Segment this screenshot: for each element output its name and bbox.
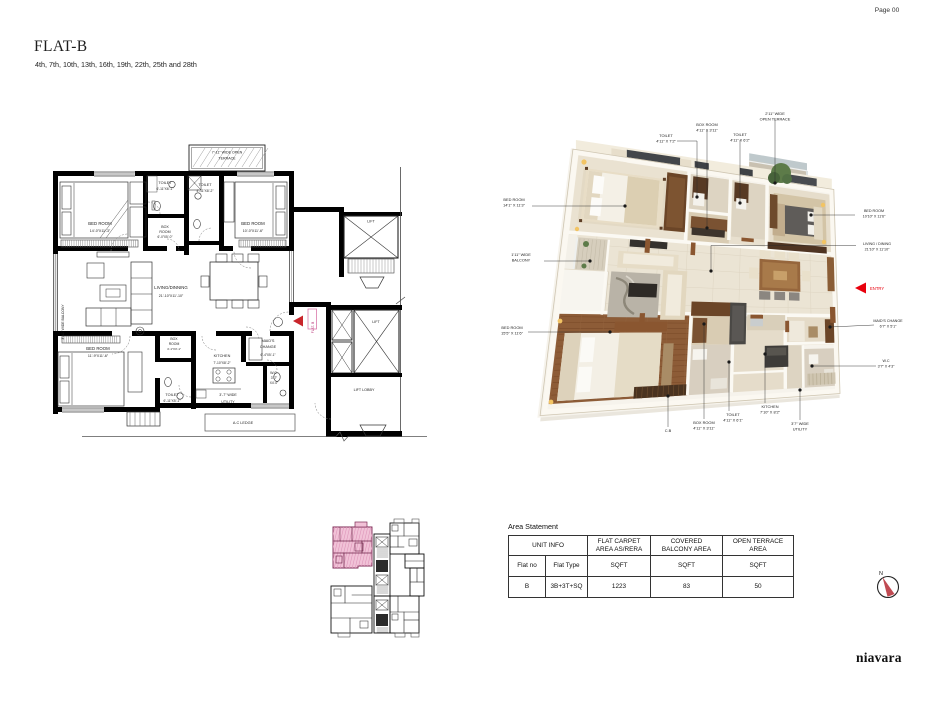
svg-text:2’11” WIDE: 2’11” WIDE (765, 111, 785, 116)
svg-text:3’7” WIDE: 3’7” WIDE (791, 421, 809, 426)
svg-text:BOX ROOM: BOX ROOM (696, 122, 717, 127)
svg-text:BALCONY: BALCONY (512, 257, 531, 262)
svg-text:LIFT LOBBY: LIFT LOBBY (354, 388, 375, 392)
svg-text:4’11” X 3’11”: 4’11” X 3’11” (696, 127, 718, 132)
svg-text:6’-11”X5’-1”: 6’-11”X5’-1” (164, 399, 181, 403)
svg-text:6’-4”X5’-1”: 6’-4”X5’-1” (261, 353, 276, 357)
svg-text:14’1” X 11’3”: 14’1” X 11’3” (503, 202, 525, 207)
svg-text:7’10” X 8’2”: 7’10” X 8’2” (760, 409, 781, 414)
svg-text:TOILET: TOILET (726, 412, 740, 417)
svg-text:6’7” X 5’1”: 6’7” X 5’1” (880, 324, 898, 328)
svg-text:10’10” X 11’6”: 10’10” X 11’6” (863, 214, 886, 218)
svg-text:X4’-0”: X4’-0” (270, 381, 279, 385)
svg-text:N: N (879, 571, 883, 577)
svg-text:11’-9”X11’-6”: 11’-9”X11’-6” (88, 354, 109, 358)
svg-text:LIFT: LIFT (367, 220, 375, 224)
svg-text:CHANGE: CHANGE (260, 345, 277, 349)
svg-text:LIVING/DINNING: LIVING/DINNING (154, 285, 188, 290)
svg-text:BOX: BOX (170, 337, 178, 341)
svg-text:FLAT- B: FLAT- B (311, 322, 315, 333)
svg-text:KITCHEN: KITCHEN (761, 404, 778, 409)
svg-text:21’10” X 11’10”: 21’10” X 11’10” (865, 247, 891, 251)
svg-text:BED ROOM: BED ROOM (503, 197, 524, 202)
svg-text:14’-0”X11’-3”: 14’-0”X11’-3” (90, 229, 111, 233)
svg-text:BOX ROOM: BOX ROOM (693, 420, 714, 425)
svg-text:W.C: W.C (883, 359, 890, 363)
svg-text:4’11” X 3’11”: 4’11” X 3’11” (693, 425, 715, 430)
svg-text:ROOM: ROOM (159, 230, 170, 234)
svg-text:4’-11”X8’-2”: 4’-11”X8’-2” (197, 189, 214, 193)
svg-text:10’-0”X11’-6”: 10’-0”X11’-6” (243, 229, 264, 233)
svg-text:UTILITY: UTILITY (793, 426, 808, 431)
svg-text:W.C.: W.C. (270, 371, 278, 375)
svg-text:3’-7”: 3’-7” (271, 376, 277, 380)
svg-text:UTILITY: UTILITY (221, 400, 235, 404)
svg-text:3’-11” WIDE BALCONY: 3’-11” WIDE BALCONY (61, 304, 65, 340)
svg-text:TOILET: TOILET (659, 133, 673, 138)
svg-text:A.C LEDGE: A.C LEDGE (233, 421, 254, 425)
svg-text:BED ROOM: BED ROOM (86, 346, 110, 351)
svg-text:LIFT: LIFT (372, 320, 380, 324)
svg-text:BOX: BOX (161, 225, 169, 229)
svg-text:4’11” X 6’2”: 4’11” X 6’2” (730, 137, 750, 142)
svg-text:TERRACE: TERRACE (218, 157, 236, 161)
svg-text:C.B: C.B (665, 428, 672, 433)
svg-text:BED ROOM: BED ROOM (241, 221, 265, 226)
svg-text:MAID’S CHANGE: MAID’S CHANGE (873, 319, 903, 323)
svg-text:4’11” X 7’2”: 4’11” X 7’2” (656, 138, 676, 143)
svg-text:21’-10”X11’-10”: 21’-10”X11’-10” (159, 294, 184, 298)
svg-text:3’7” X 4’3”: 3’7” X 4’3” (878, 364, 896, 368)
svg-text:BED ROOM: BED ROOM (864, 209, 884, 213)
svg-text:TOILET: TOILET (165, 393, 179, 397)
svg-text:LIVING / DINING: LIVING / DINING (863, 242, 891, 246)
svg-text:ENTRY: ENTRY (870, 286, 884, 291)
svg-text:1’11” WIDE: 1’11” WIDE (511, 252, 531, 257)
svg-text:BED ROOM: BED ROOM (501, 325, 522, 330)
svg-text:TOILET: TOILET (733, 132, 747, 137)
svg-text:7’-11” WIDE OPEN: 7’-11” WIDE OPEN (212, 151, 243, 155)
svg-text:MAID’S: MAID’S (262, 339, 275, 343)
svg-text:KITCHEN: KITCHEN (214, 354, 231, 358)
svg-text:4’11” X 6’1”: 4’11” X 6’1” (723, 417, 743, 422)
svg-text:3’-7” WIDE: 3’-7” WIDE (219, 393, 237, 397)
svg-text:6’-11”X6’-1”: 6’-11”X6’-1” (157, 187, 174, 191)
svg-text:15’5” X 11’6”: 15’5” X 11’6” (501, 330, 523, 335)
svg-text:TOILET: TOILET (198, 183, 212, 187)
svg-text:TOILET: TOILET (158, 181, 172, 185)
svg-text:ROOM: ROOM (169, 342, 180, 346)
svg-text:BED ROOM: BED ROOM (88, 221, 112, 226)
svg-text:7’-10”X8’-2”: 7’-10”X8’-2” (213, 361, 230, 365)
svg-text:4’-1”X3’-1”: 4’-1”X3’-1” (167, 347, 181, 351)
svg-text:6’-0”X5’-0”: 6’-0”X5’-0” (158, 235, 173, 239)
